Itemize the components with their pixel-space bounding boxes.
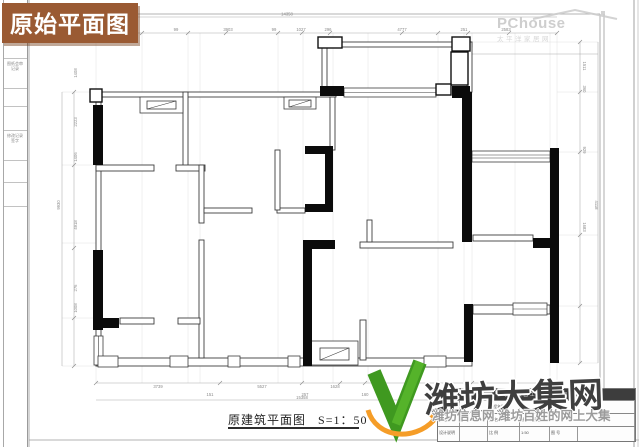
dim-label: 15358	[296, 395, 308, 400]
column	[305, 204, 333, 212]
wall	[199, 240, 204, 358]
column-outline	[318, 37, 342, 48]
tb-value	[460, 427, 488, 441]
column	[102, 318, 119, 328]
tb-value	[578, 427, 635, 441]
drawing-scale-text: S=1：50	[318, 413, 367, 427]
column-outline	[451, 52, 468, 85]
wall	[360, 242, 453, 248]
dim-label: 360	[582, 86, 587, 94]
dim-label: 3739	[153, 384, 163, 389]
dim-label: 1683	[582, 222, 587, 232]
dim-label: 5527	[257, 384, 267, 389]
wall	[275, 150, 280, 210]
roof-icon	[531, 9, 640, 21]
dim-label: 296	[325, 27, 333, 32]
dim-label: 4118	[594, 200, 599, 210]
wall	[96, 165, 154, 171]
tb-label: 图 号	[550, 427, 578, 441]
drawing-title: 原建筑平面图 S=1：50	[228, 411, 378, 428]
wall	[199, 165, 204, 223]
columns	[93, 86, 559, 366]
dim-label: 1008	[73, 303, 78, 313]
window	[228, 356, 240, 367]
dim-label: 1408	[73, 68, 78, 78]
dim-label: 151	[207, 392, 215, 397]
dim-label: 99	[174, 27, 179, 32]
column	[93, 105, 103, 165]
wall	[367, 220, 372, 242]
pchouse-watermark: PChouse 太平洋家居网	[497, 15, 615, 43]
screenshot-root: 图纸会审记录 修改记录签字	[0, 0, 640, 447]
windows	[94, 88, 550, 367]
dim-label: 1628	[330, 384, 340, 389]
column	[533, 238, 551, 248]
wall	[322, 42, 472, 47]
wall	[330, 97, 335, 150]
dim-label: 251	[461, 27, 469, 32]
wall	[178, 318, 200, 324]
dim-label: 2223	[73, 117, 78, 127]
column	[303, 240, 312, 366]
wall	[360, 320, 366, 360]
tb-label: 比 例	[488, 427, 520, 441]
dim-label: 9930	[56, 200, 61, 210]
wall	[322, 42, 327, 92]
column	[93, 250, 103, 330]
dim-label: 3903	[223, 27, 233, 32]
wall	[183, 92, 188, 167]
dim-label: 4777	[397, 27, 407, 32]
window	[98, 356, 118, 367]
dim-label: 4918	[73, 220, 78, 230]
daji-watermark-tagline: 潍坊信息网 潍坊百姓的网上大集	[432, 405, 640, 424]
title-underline	[228, 427, 359, 429]
wall	[473, 235, 533, 241]
wall	[120, 318, 154, 324]
wall	[96, 92, 336, 97]
column-outline	[90, 89, 102, 102]
dim-label: 14358	[281, 12, 293, 17]
drawing-title-text: 原建筑平面图	[228, 413, 306, 427]
dim-label: 1027	[296, 27, 306, 32]
pchouse-subtitle: 太平洋家居网	[497, 33, 615, 43]
window	[472, 151, 550, 162]
corner-label: 原始平面图	[2, 3, 138, 43]
column	[550, 148, 559, 363]
column	[320, 86, 344, 96]
window	[288, 356, 300, 367]
column	[325, 146, 333, 212]
column	[462, 92, 472, 242]
column-outline	[452, 37, 470, 51]
window	[170, 356, 188, 367]
dim-label: 1511	[582, 61, 587, 71]
wall	[277, 208, 305, 213]
dim-label: 276	[73, 284, 78, 292]
dim-label: 1406	[73, 152, 78, 162]
column	[464, 304, 473, 362]
tb-value: 1:50	[520, 427, 550, 441]
wall	[204, 208, 252, 213]
dim-label: 99	[272, 27, 277, 32]
column-outline	[436, 84, 451, 95]
dim-label: 929	[582, 147, 587, 155]
